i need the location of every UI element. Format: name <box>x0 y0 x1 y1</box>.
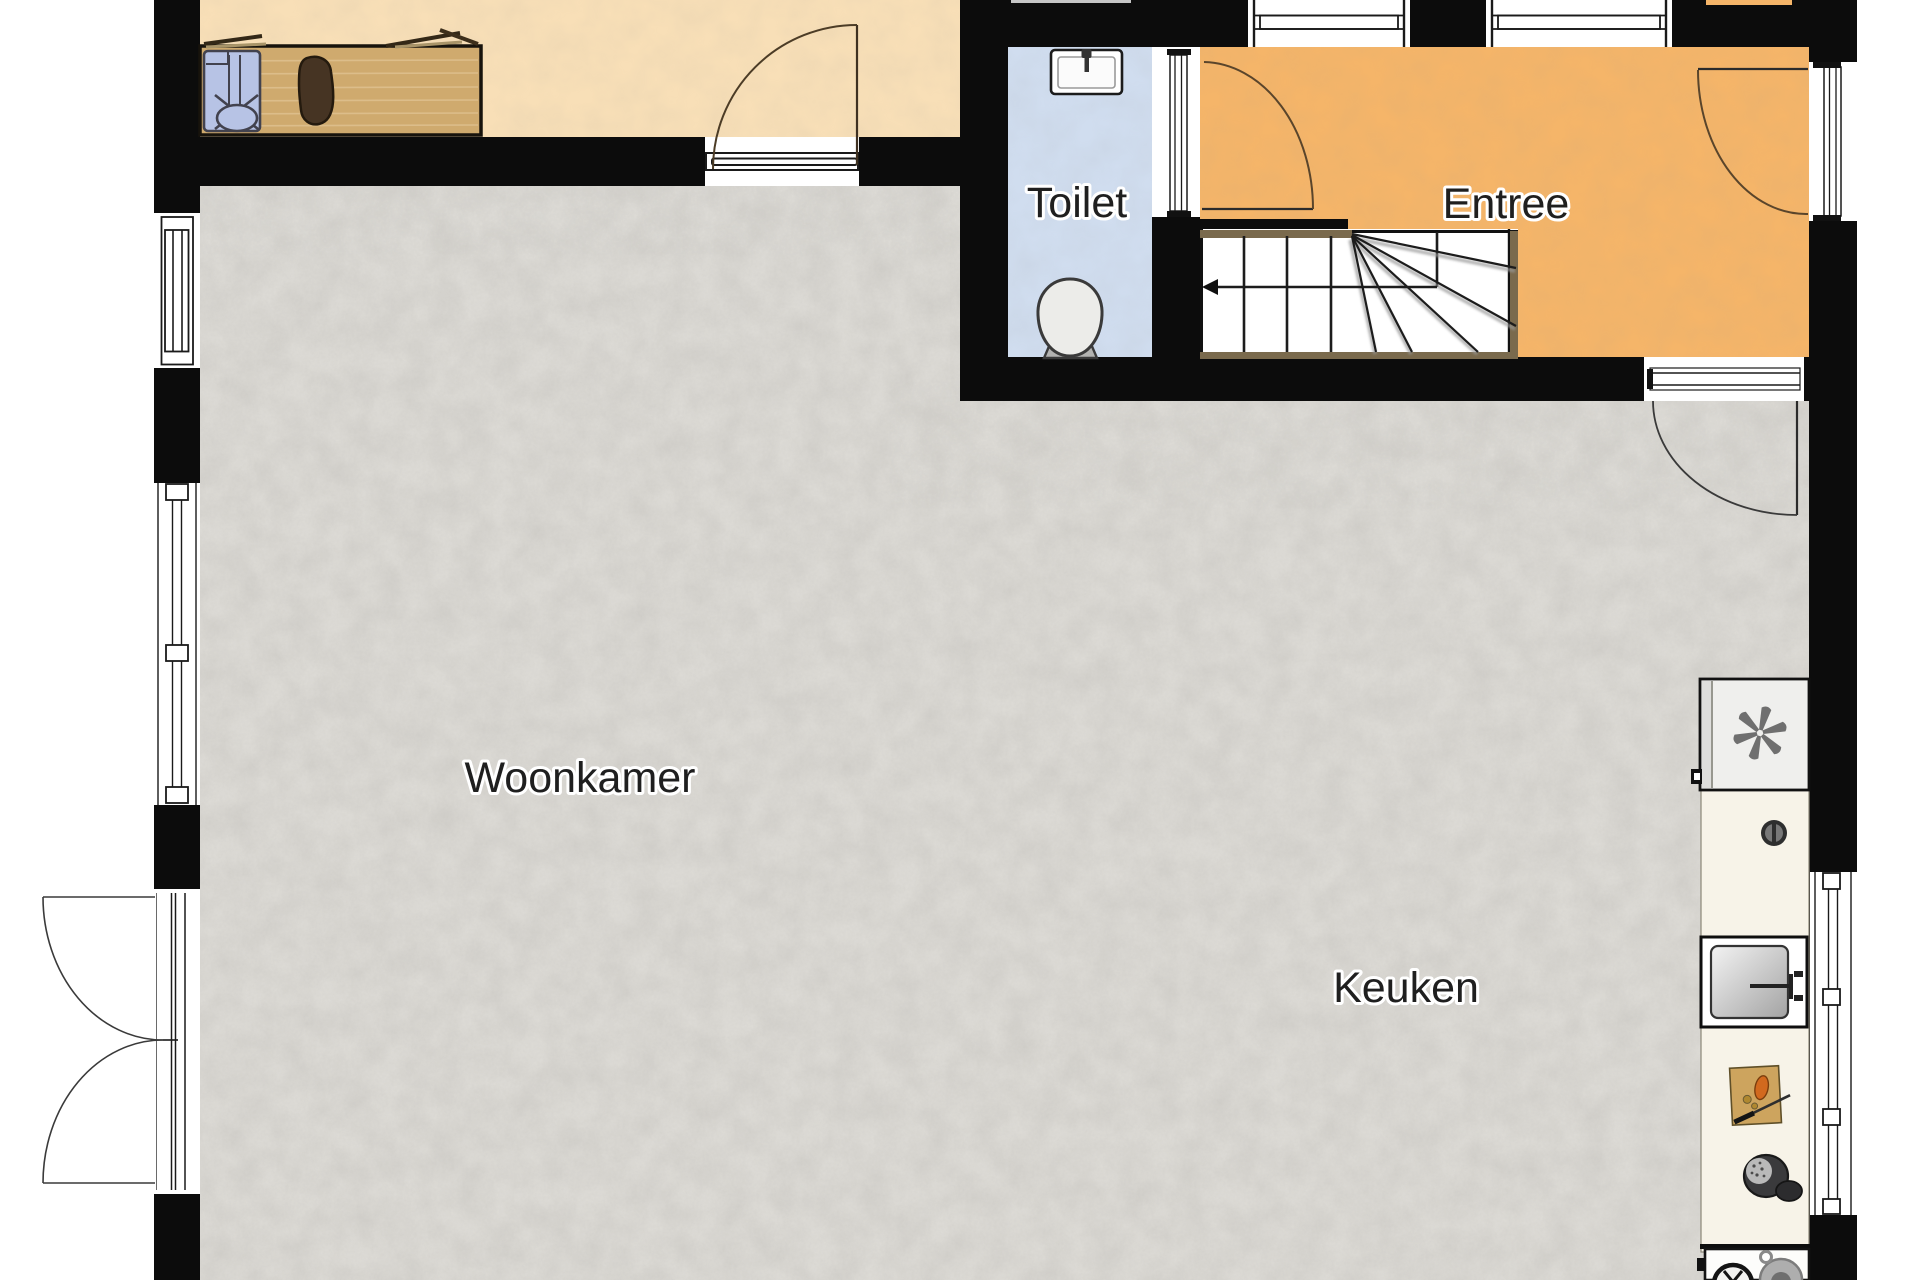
svg-text:Toilet: Toilet <box>1027 179 1127 227</box>
svg-text:Woonkamer: Woonkamer <box>464 754 695 802</box>
svg-text:Keuken: Keuken <box>1333 964 1479 1012</box>
svg-text:Entree: Entree <box>1443 180 1570 228</box>
